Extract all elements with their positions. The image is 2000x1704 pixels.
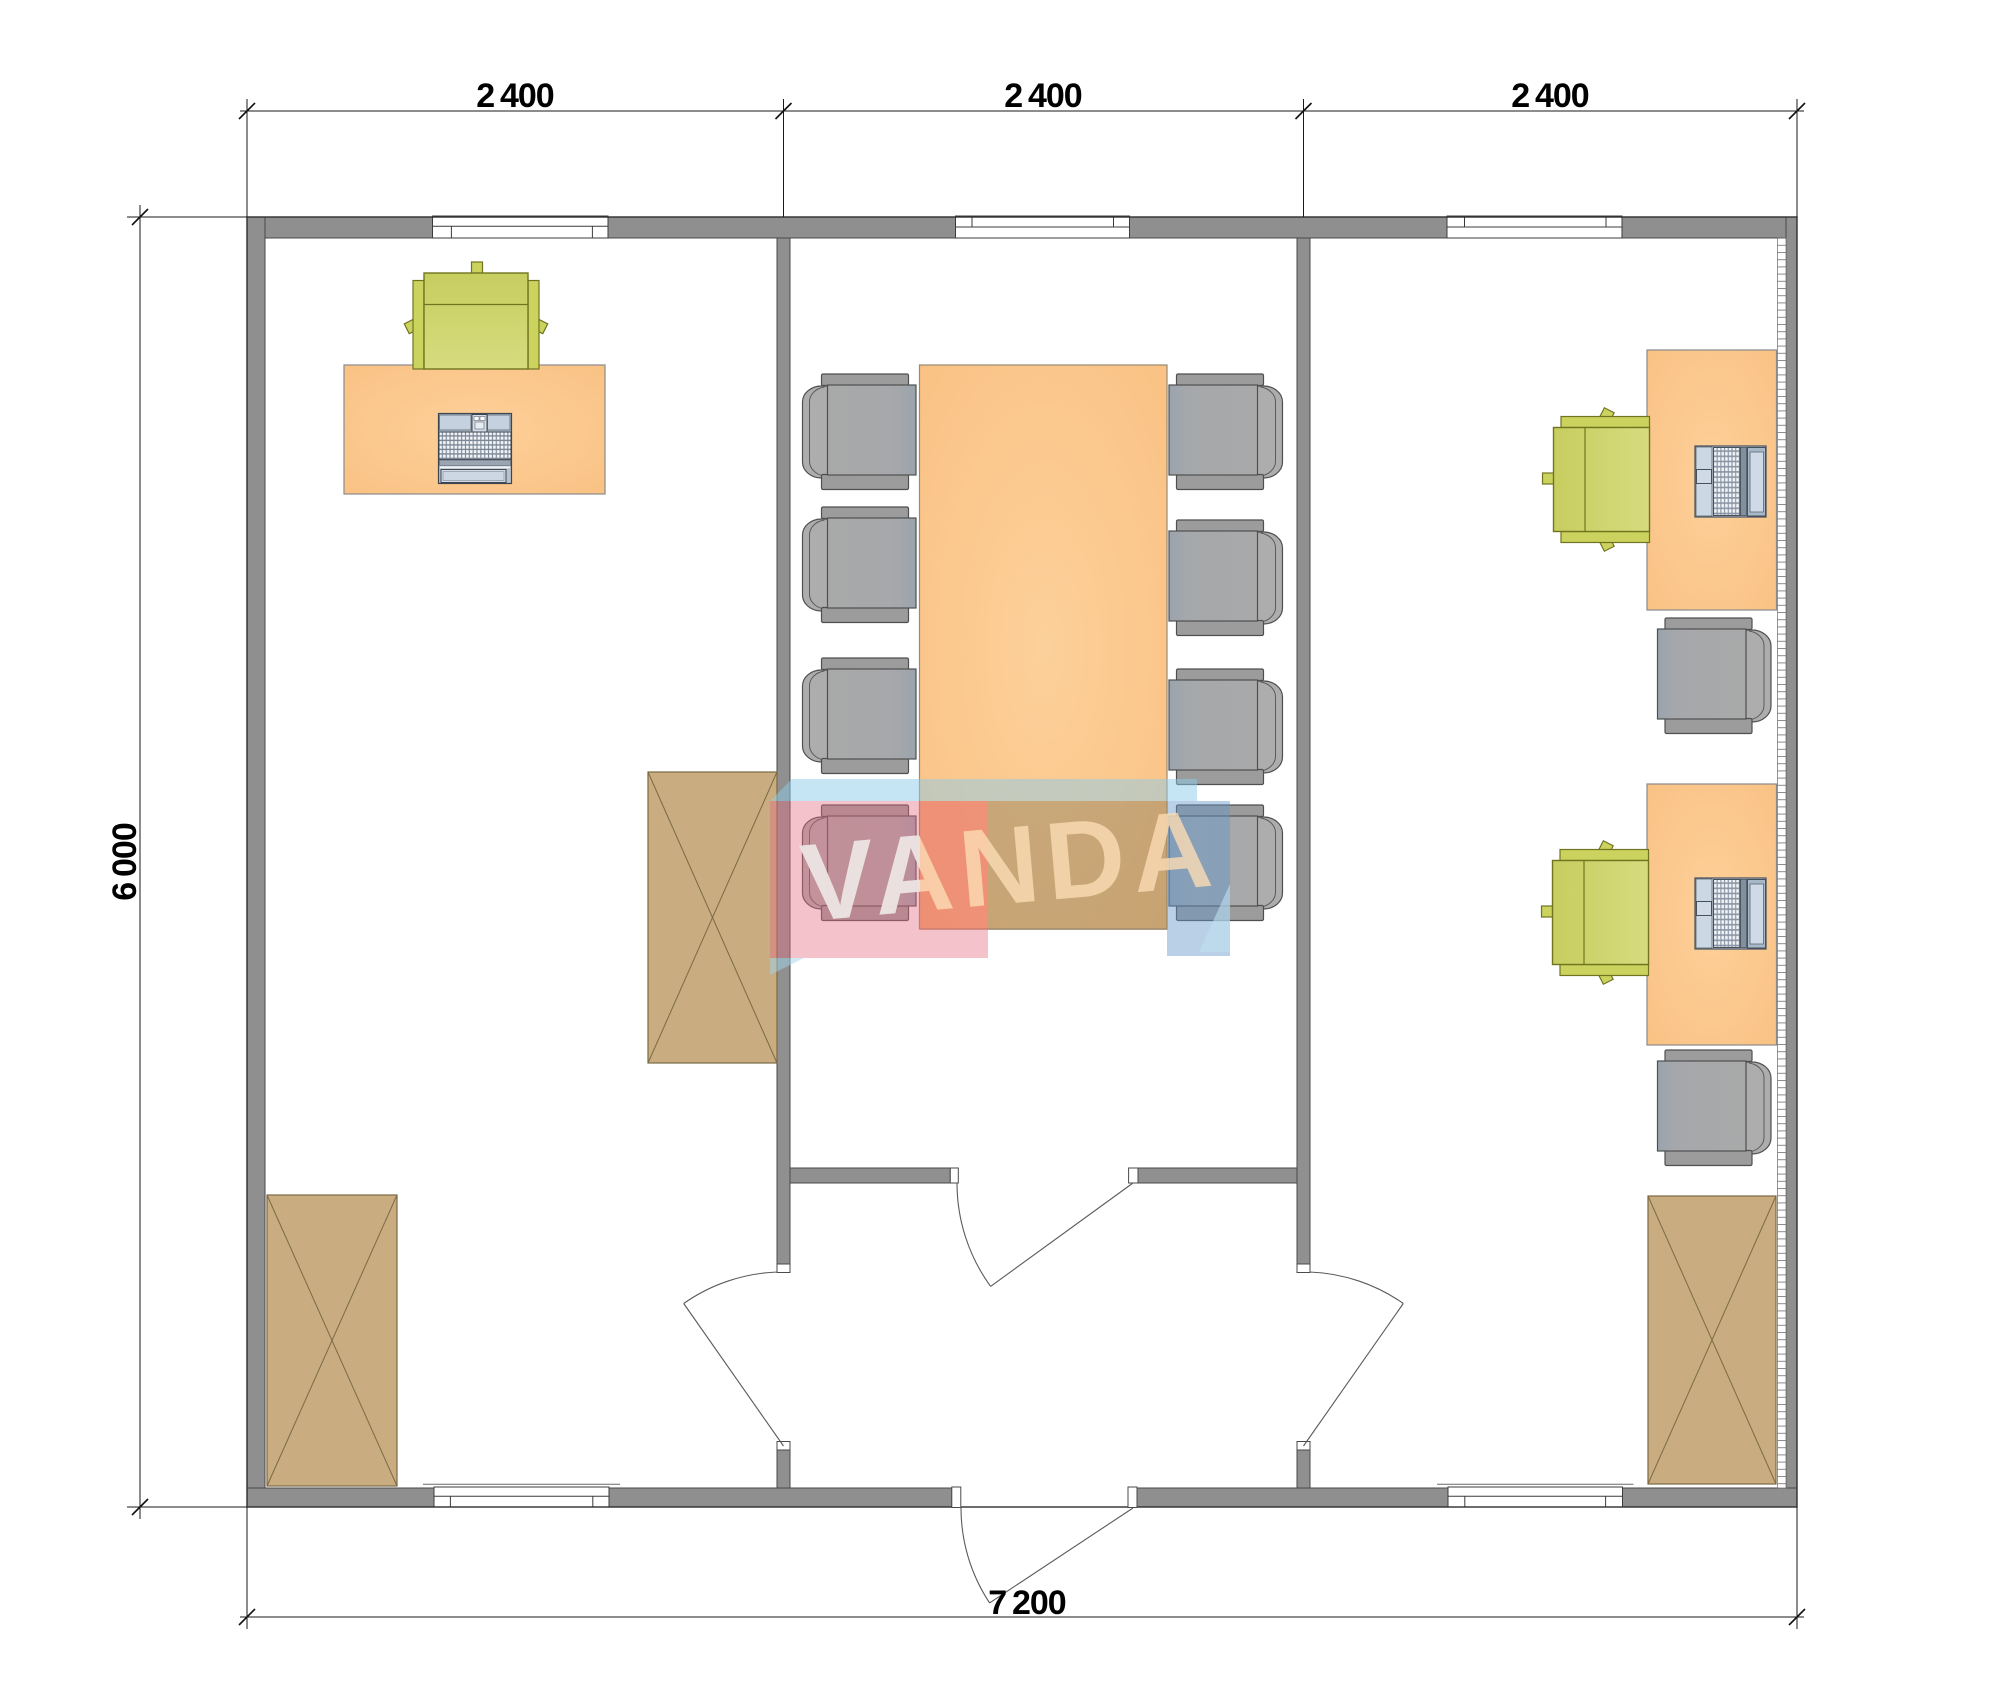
- svg-text:7 200: 7 200: [988, 1584, 1066, 1622]
- svg-text:2 400: 2 400: [1004, 77, 1082, 115]
- svg-text:2 400: 2 400: [476, 77, 554, 115]
- svg-text:6 000: 6 000: [106, 823, 144, 901]
- svg-text:2 400: 2 400: [1511, 77, 1589, 115]
